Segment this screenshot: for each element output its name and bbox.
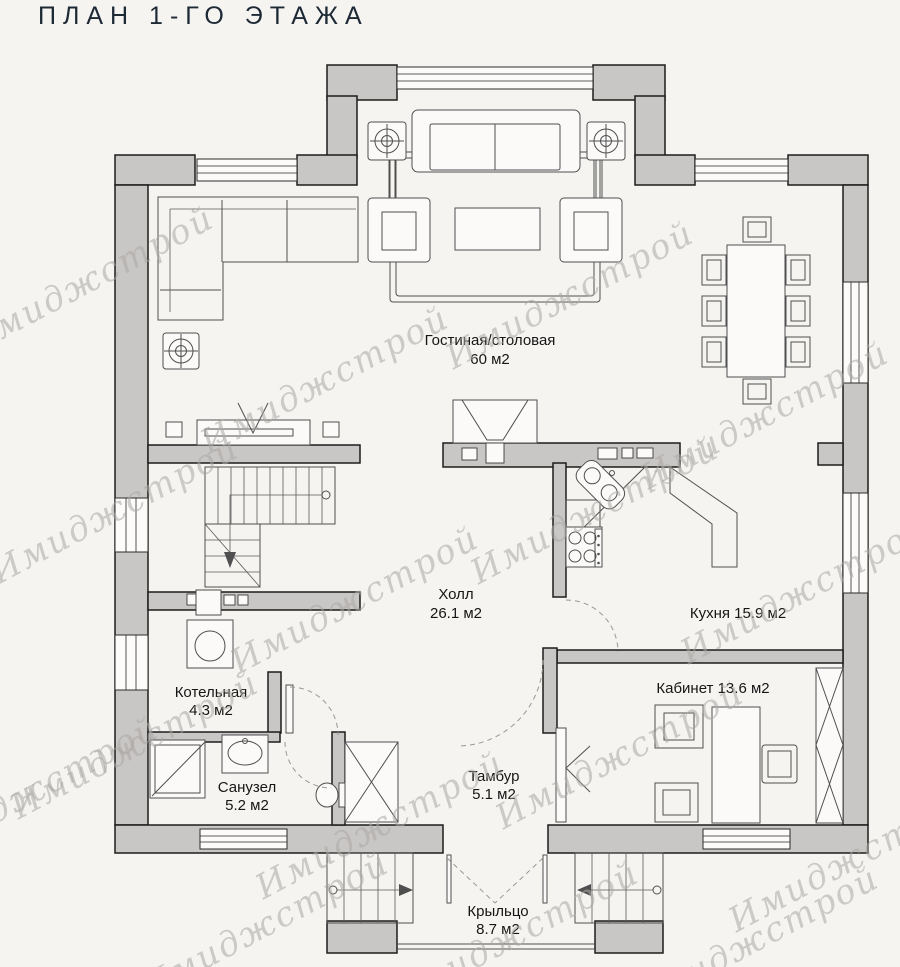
watermark-text: Имиджстрой (488, 673, 751, 838)
chair (702, 337, 726, 367)
light-fixture-icon (587, 122, 625, 198)
desk-chair (762, 745, 797, 783)
staircase (205, 467, 335, 587)
window (115, 635, 148, 690)
room-label-bathroom: Санузел 5.2 м2 (218, 779, 276, 814)
bathroom-sink (222, 735, 268, 773)
sofa (412, 110, 580, 172)
room-name: Холл (438, 586, 473, 603)
chair (786, 255, 810, 285)
light-fixture-icon (368, 122, 406, 198)
door-leaf (286, 685, 293, 733)
chair (743, 217, 771, 242)
armchair (368, 198, 430, 262)
chair (786, 296, 810, 326)
boiler-unit (187, 620, 233, 668)
armchair (655, 783, 698, 822)
room-area: 5.2 м2 (225, 797, 269, 814)
window (197, 159, 297, 181)
floor-plan: Гостиная/столовая 60 м2 Холл 26.1 м2 Кух… (0, 0, 900, 967)
room-name: Санузел (218, 779, 276, 796)
window (200, 829, 287, 849)
fireplace (453, 400, 537, 443)
chair (702, 296, 726, 326)
room-area: 26.1 м2 (430, 605, 482, 622)
dining-table (727, 245, 785, 377)
chair (786, 337, 810, 367)
window (397, 67, 593, 89)
room-label-hall: Холл 26.1 м2 (430, 586, 482, 622)
coffee-table (455, 208, 540, 250)
window (695, 159, 788, 181)
light-fixture-icon (163, 333, 199, 369)
built-in-closet (816, 668, 843, 823)
chair (702, 255, 726, 285)
window (703, 829, 790, 849)
